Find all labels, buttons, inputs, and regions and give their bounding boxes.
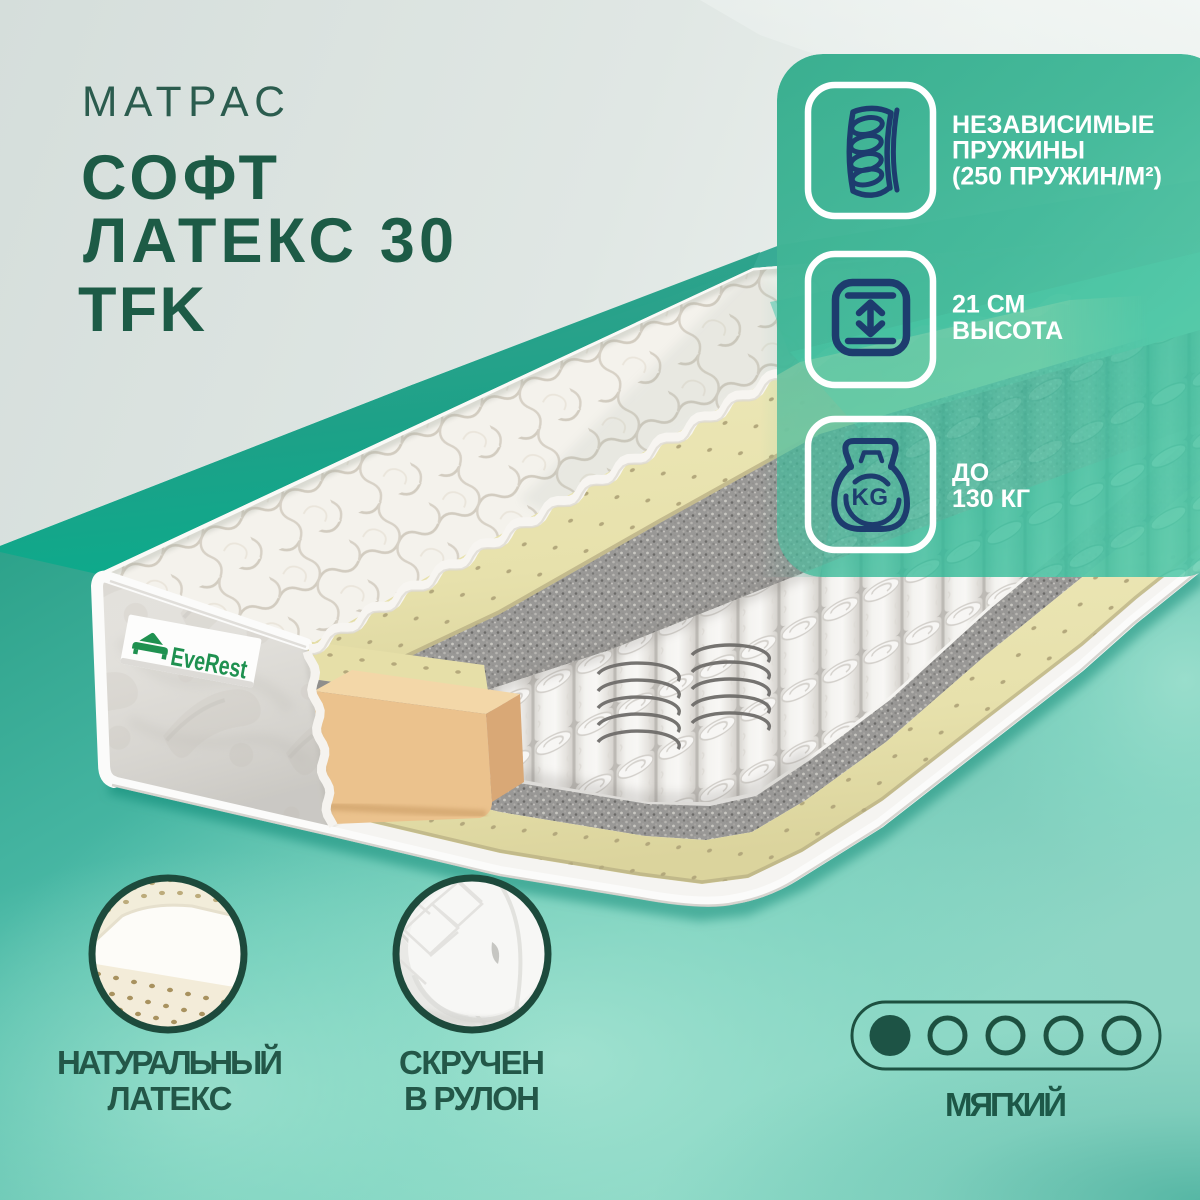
svg-text:ЛАТЕКС: ЛАТЕКС — [108, 1080, 233, 1117]
svg-text:ВЫСОТА: ВЫСОТА — [952, 317, 1063, 345]
svg-text:21 СМ: 21 СМ — [952, 291, 1025, 319]
svg-text:KG: KG — [852, 484, 889, 511]
svg-text:НАТУРАЛЬНЫЙ: НАТУРАЛЬНЫЙ — [57, 1043, 283, 1081]
svg-text:СКРУЧЕН: СКРУЧЕН — [399, 1044, 545, 1081]
svg-text:(250 ПРУЖИН/М²): (250 ПРУЖИН/М²) — [952, 163, 1162, 191]
svg-text:TFK: TFK — [78, 275, 205, 345]
svg-text:ДО: ДО — [952, 459, 989, 487]
svg-text:НЕЗАВИСИМЫЕ: НЕЗАВИСИМЫЕ — [952, 111, 1154, 139]
svg-text:ЛАТЕКС 30: ЛАТЕКС 30 — [83, 206, 454, 276]
svg-text:ПРУЖИНЫ: ПРУЖИНЫ — [952, 137, 1085, 165]
svg-text:В РУЛОН: В РУЛОН — [404, 1080, 540, 1117]
svg-text:130 КГ: 130 КГ — [952, 485, 1030, 513]
